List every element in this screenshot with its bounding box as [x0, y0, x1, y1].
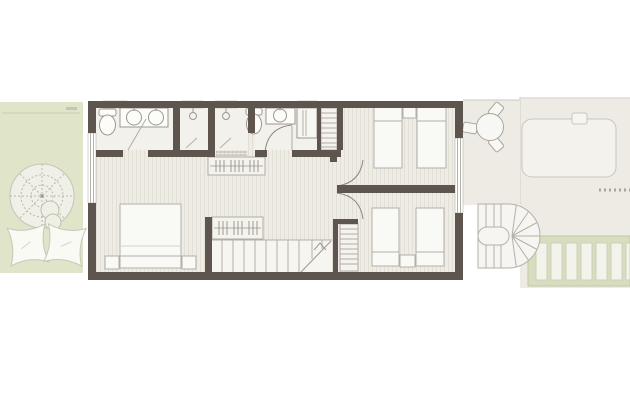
- wall-right-upper: [455, 101, 463, 138]
- shower-stall-1-floor: [180, 108, 208, 150]
- wall-segment: [317, 108, 321, 150]
- garden-step: [66, 107, 77, 110]
- parasol-pole: [40, 194, 43, 197]
- floor-plan-svg: [0, 0, 630, 401]
- single-bed: [374, 105, 402, 168]
- wall-left-lower: [88, 203, 96, 280]
- hanging-wardrobe-1: [208, 157, 265, 175]
- wall-segment: [208, 108, 215, 157]
- window-left: [88, 133, 96, 203]
- shower-cabin: [297, 108, 317, 138]
- dwelling: [88, 101, 463, 280]
- wall-bottom: [88, 272, 462, 280]
- exterior-curved-stair: [478, 204, 540, 268]
- wall-segment: [96, 150, 123, 157]
- single-bed: [416, 208, 444, 266]
- headboard: [120, 256, 181, 268]
- side-terrace: [462, 100, 520, 205]
- nightstand: [400, 255, 415, 267]
- wall-stair-side: [205, 217, 212, 272]
- nightstand: [105, 256, 119, 269]
- chair-icon: [462, 122, 478, 134]
- wall-segment: [333, 219, 338, 272]
- toilet-bowl: [100, 115, 116, 135]
- wall-segment: [148, 150, 213, 157]
- wall-bedroom-divider: [337, 185, 455, 193]
- bean-bag-right-icon: [44, 224, 86, 266]
- day-bed-pad: [522, 119, 616, 177]
- basin-icon: [149, 110, 164, 125]
- wall-left-upper: [88, 101, 96, 133]
- wall-top: [88, 101, 462, 108]
- window-right-glazing: [455, 138, 463, 213]
- wall-segment: [333, 219, 358, 224]
- wall-segment: [255, 150, 267, 157]
- round-table: [477, 114, 504, 141]
- shelf-closet: [340, 224, 358, 271]
- double-bed: [120, 204, 181, 256]
- floor-plan-canvas: [0, 0, 630, 401]
- single-bed: [372, 208, 399, 266]
- curved-stair-island: [478, 227, 509, 245]
- wall-segment: [330, 150, 337, 162]
- shower-stall-2-floor: [215, 108, 248, 150]
- nightstand: [182, 256, 196, 269]
- wall-right-lower: [455, 213, 463, 280]
- bean-bag-left-icon: [7, 224, 49, 266]
- hanging-wardrobe-2: [212, 217, 263, 239]
- single-bed: [417, 105, 446, 168]
- garden: [0, 102, 86, 273]
- small-step: [572, 113, 587, 124]
- pergola: [528, 236, 630, 286]
- wall-segment: [173, 108, 180, 150]
- basin-icon: [127, 110, 142, 125]
- linen-closet-shelves: [321, 108, 337, 150]
- wall-segment: [337, 108, 343, 150]
- stair-floor: [212, 240, 332, 272]
- basin-icon: [274, 109, 287, 122]
- wall-segment: [248, 108, 255, 133]
- parasol-icon: [10, 164, 74, 228]
